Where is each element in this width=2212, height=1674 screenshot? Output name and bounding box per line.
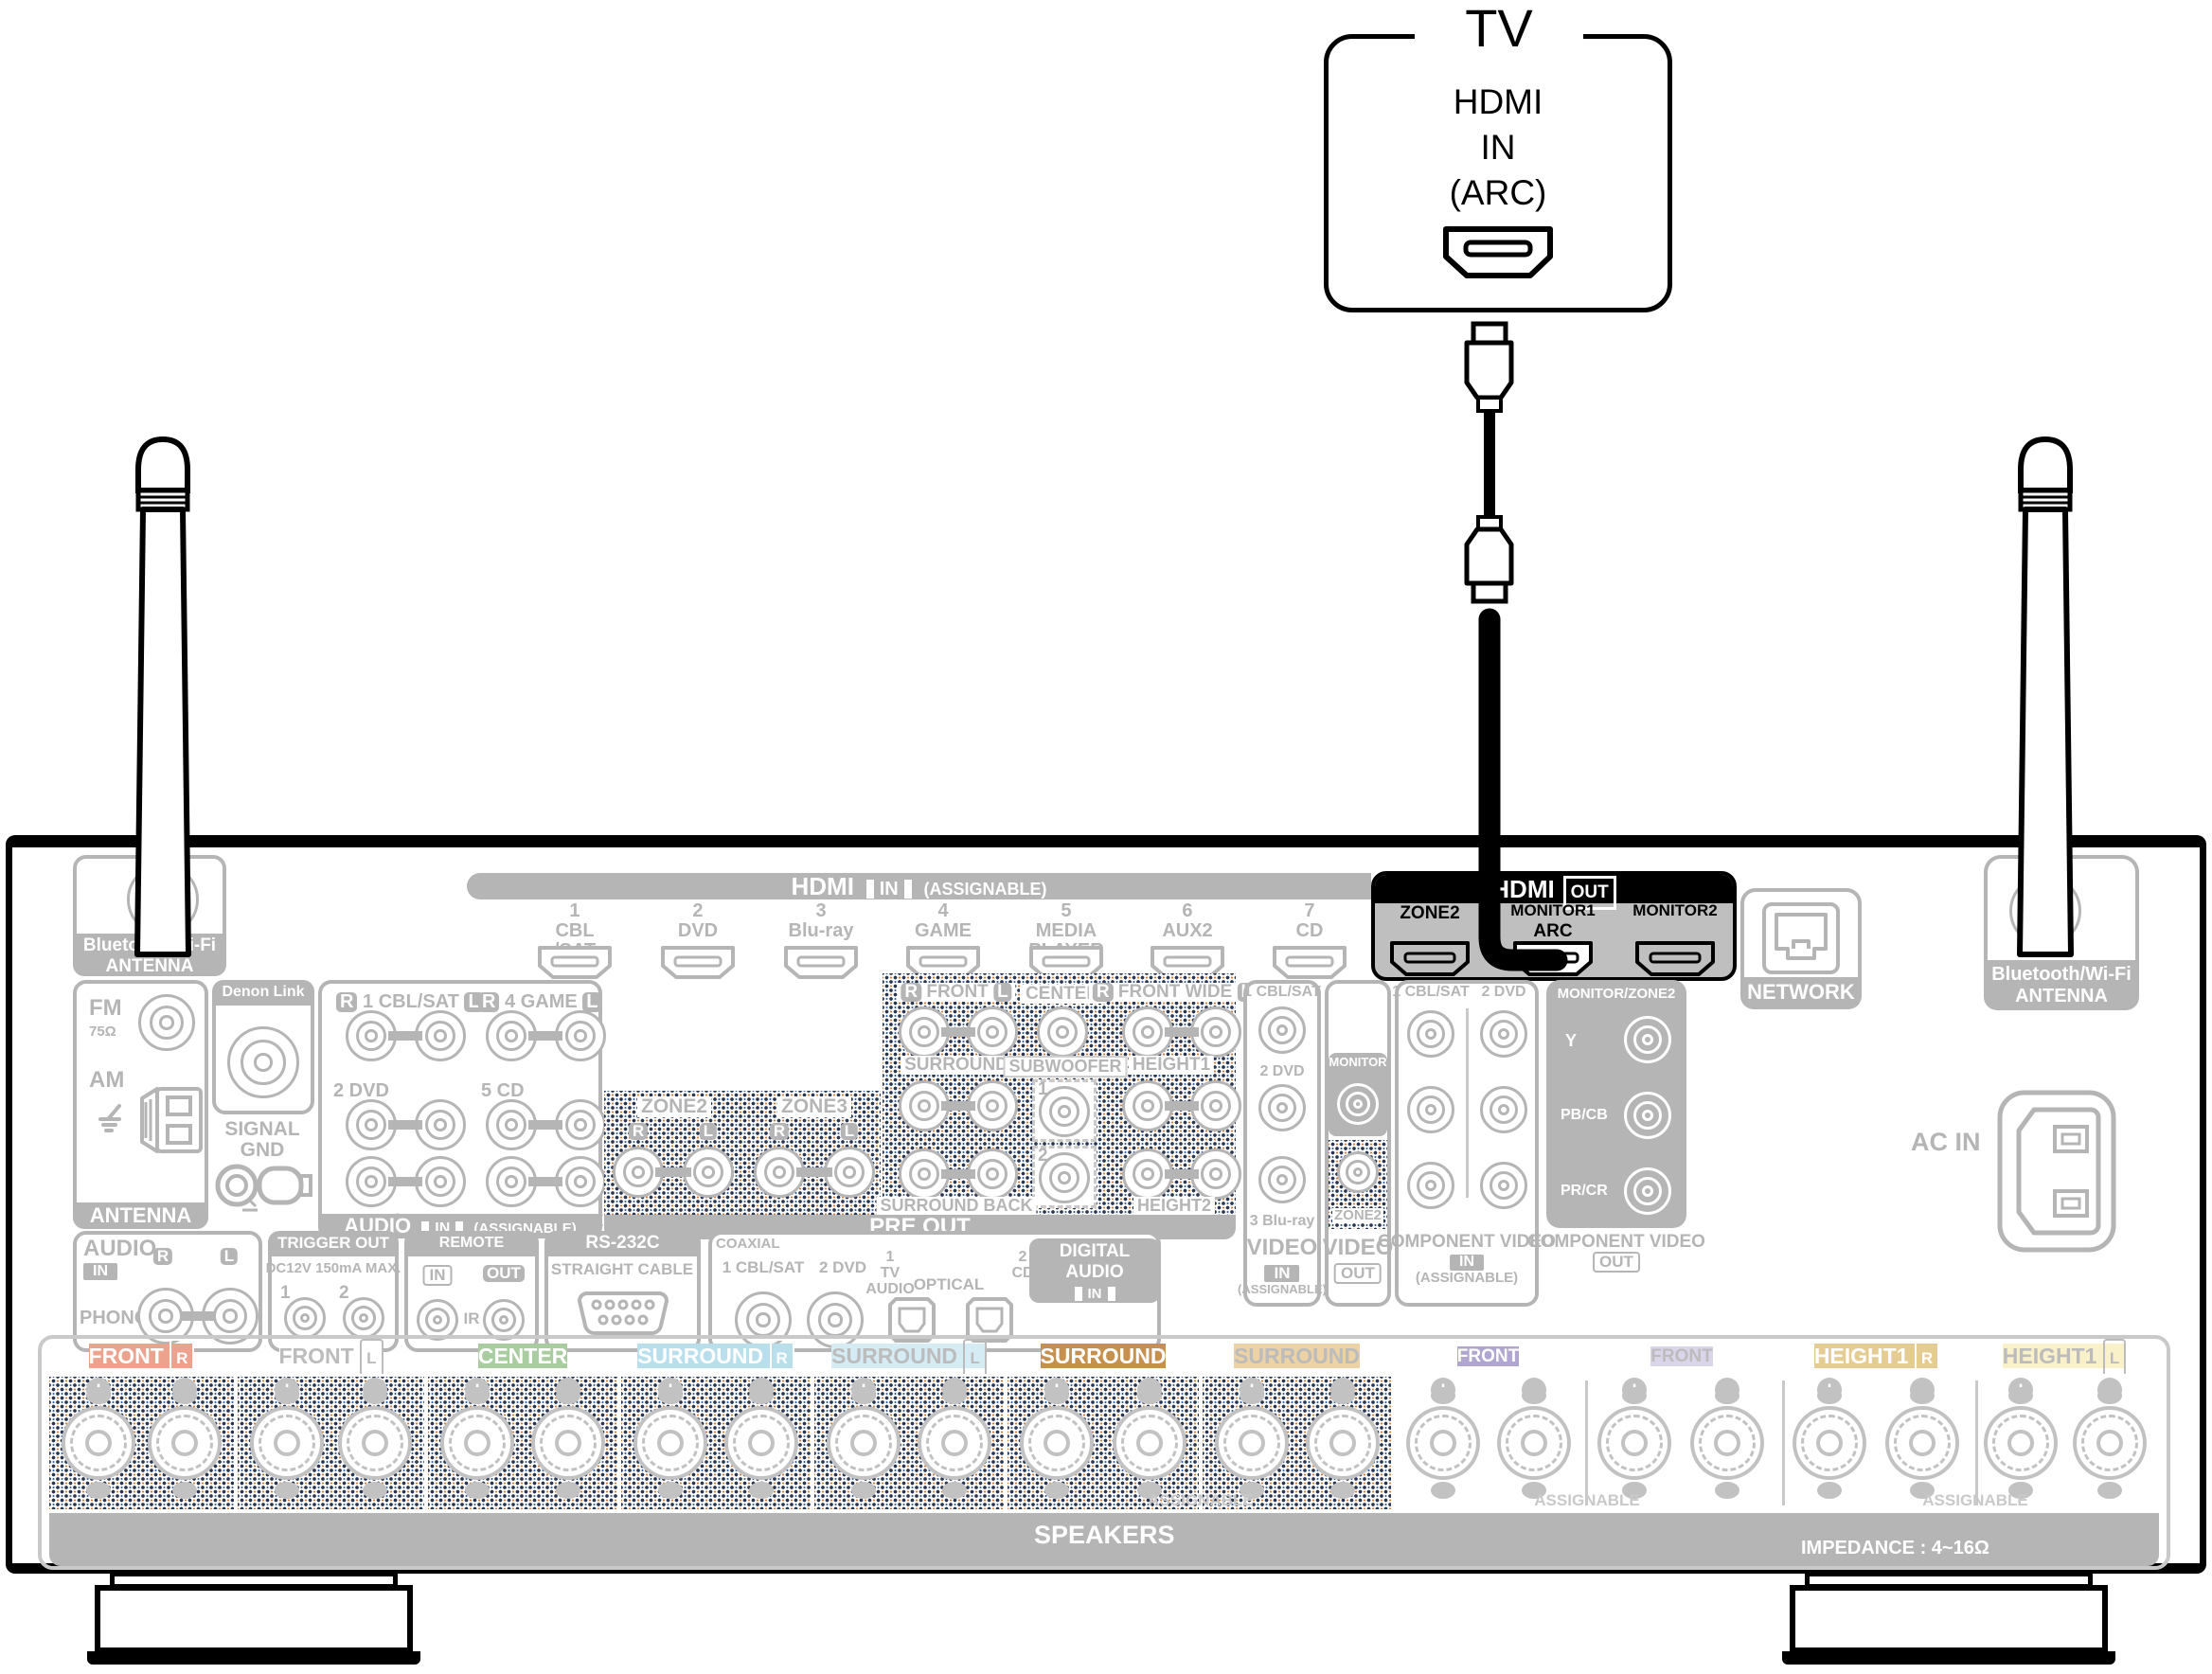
denon-link-title: Denon Link HD [212, 980, 314, 1006]
video-out-monitor-jack [1337, 1083, 1379, 1125]
post-front-r-minus [148, 1406, 222, 1480]
audio-in-6-l-jack [555, 1156, 606, 1207]
component-out-footer: COMPONENT VIDEO OUT [1527, 1233, 1705, 1273]
speaker-header-surround-back-l: SURROUND BACK L [1203, 1339, 1391, 1374]
trigger-out-1-jack [284, 1297, 326, 1339]
post-height1-r-minus [1885, 1406, 1959, 1480]
audio-in-p4-label: R 4 GAME L [478, 992, 601, 1012]
preout-zone3-l: L [841, 1123, 858, 1140]
video-in-1-jack [1258, 1006, 1306, 1054]
hdmi-out-arc-label: ARC [1533, 922, 1572, 941]
component-out-pb-label: PB/CB [1561, 1108, 1608, 1124]
tv-port-label: HDMI IN (ARC) [1324, 80, 1672, 216]
hdmi-out-monitor2-port-icon [1634, 940, 1716, 978]
tuner-antenna-footer: ANTENNA [73, 1202, 208, 1229]
ground-symbol-icon [93, 1100, 131, 1138]
preout-subwoofer2-jack [1039, 1152, 1090, 1203]
hdmi-cable-plug-bottom [1467, 517, 1511, 601]
preout-center-jack [1037, 1006, 1088, 1058]
hdmi-in-port-7-label: 7 CD [1296, 901, 1324, 941]
video-in-footer: VIDEO IN (ASSIGNABLE) [1238, 1236, 1327, 1296]
tv-title-plate: TV [1415, 0, 1583, 59]
hdmi-in-port-6-label: 6 AUX2 [1162, 901, 1212, 941]
digital-tv-label: 1 TV AUDIO [865, 1250, 915, 1297]
video-in-3-jack [1258, 1156, 1306, 1203]
preout-subwoofer1-jack [1039, 1086, 1090, 1137]
post-height1-l-minus [2073, 1406, 2147, 1480]
hdmi-cable-plug-top [1467, 324, 1511, 517]
hdmi-in-port-2-icon [660, 945, 736, 981]
spk-h8: FRONT WIDE/HEIGHT2 L [1603, 1346, 1760, 1374]
fm-ohm-label: 75Ω [89, 1024, 116, 1040]
impedance-label: IMPEDANCE : 4~16Ω [1801, 1538, 1989, 1559]
digital-coaxial-label: COAXIAL [716, 1237, 780, 1252]
assignable-note-1: ASSIGNABLE [1148, 1492, 1253, 1509]
ethernet-port-icon [1761, 901, 1841, 975]
trigger-out-title: TRIGGER OUT [268, 1231, 399, 1256]
component-in-2-pr-jack [1480, 1162, 1527, 1209]
speakers-footer: SPEAKERS IMPEDANCE : 4~16Ω [49, 1513, 2159, 1566]
hdmi-in-header: HDMI IN (ASSIGNABLE) [467, 873, 1371, 899]
hdmi-out-monitor2-label: MONITOR2 [1632, 902, 1717, 919]
am-label: AM [89, 1068, 124, 1092]
preout-height1-label: HEIGHT1 [1129, 1056, 1214, 1075]
bt-antenna-left-mount [127, 864, 199, 935]
rs232-connector-icon [578, 1288, 669, 1339]
preout-zone3-r: R [770, 1123, 789, 1140]
bt-antenna-left-label: Bluetooth/Wi-Fi ANTENNA [73, 934, 226, 976]
hdmi-out-monitor1-port-icon [1512, 940, 1594, 978]
ac-inlet-icon [1996, 1089, 2117, 1254]
preout-subwoofer-label: SUBWOOFER [1004, 1056, 1128, 1077]
fm-jack [138, 994, 195, 1051]
post-center-plus [440, 1406, 514, 1480]
digital-optical-label: OPTICAL [914, 1276, 985, 1293]
digital-audio-badge: DIGITAL AUDIO IN (ASSIGNABLE) [1029, 1238, 1160, 1303]
spk-h1: FRONT L [279, 1344, 384, 1368]
preout-zone2-r: R [629, 1123, 648, 1140]
post-surround-l-plus [827, 1406, 901, 1480]
component-out-title: MONITOR/ZONE2 [1558, 987, 1676, 1002]
trigger-out-2-jack [343, 1297, 384, 1339]
remote-in-badge: IN [423, 1265, 453, 1286]
hdmi-in-port-3-label: 3 Blu-ray [789, 901, 854, 941]
speaker-header-frontwide-height2-r: FRONT WIDE/HEIGHT2 R [1395, 1339, 1581, 1374]
component-in-1-pb-jack [1407, 1086, 1454, 1133]
hdmi-in-port-4-label: 4 GAME [915, 901, 972, 941]
post-height1-l-plus [1984, 1406, 2058, 1480]
denon-link-jack [227, 1026, 299, 1098]
post-center-minus [531, 1406, 605, 1480]
post-front-l-plus [250, 1406, 324, 1480]
post-surround-r-minus [724, 1406, 798, 1480]
remote-out-badge: OUT [483, 1265, 525, 1282]
trigger-out-sub: DC12V 150mA MAX. [266, 1261, 401, 1276]
ac-in-label: AC IN [1911, 1129, 1981, 1155]
video-out-zone2-jack [1337, 1151, 1379, 1193]
preout-zone2-label: ZONE2 [637, 1096, 711, 1117]
component-out-y-jack [1624, 1016, 1671, 1063]
receiver-foot-right [1790, 1572, 2108, 1670]
trigger-out-2: 2 [339, 1284, 349, 1303]
speaker-header-surround-l: SURROUND L [814, 1339, 1004, 1374]
signal-gnd-label: SIGNAL GND [224, 1119, 299, 1161]
post-frontwide-l-plus [1597, 1406, 1671, 1480]
tv-in-label: IN [1324, 125, 1672, 170]
post-surround-back-l-plus [1215, 1406, 1289, 1480]
hdmi-out-zone2-port-icon [1389, 940, 1471, 978]
tv-title: TV [1465, 0, 1533, 58]
tv-hdmi-label: HDMI [1324, 80, 1672, 125]
video-in-p1-label: 1 CBL/SAT [1243, 985, 1320, 1001]
component-out-y-label: Y [1565, 1032, 1577, 1050]
component-in-p2-label: 2 DVD [1481, 985, 1525, 1001]
hdmi-in-port-7-icon [1272, 945, 1347, 981]
spk-h4: SURROUND L [831, 1344, 987, 1368]
component-out-pb-jack [1624, 1092, 1671, 1139]
spk-h5: SURROUND BACK R [1041, 1344, 1167, 1374]
audio-in-1-l-jack [415, 1010, 466, 1061]
preout-zone3-label: ZONE3 [777, 1096, 851, 1117]
hdmi-out-title: HDMI [1491, 875, 1554, 903]
post-surround-back-r-plus [1020, 1406, 1094, 1480]
audio-in-p5-label: 5 CD [481, 1081, 525, 1101]
assignable-note-3: ASSIGNABLE [1922, 1492, 2027, 1509]
component-in-2-y-jack [1480, 1010, 1527, 1058]
hdmi-out-monitor1-label: MONITOR1 [1510, 902, 1595, 919]
trigger-out-1: 1 [280, 1284, 291, 1303]
remote-control-title: REMOTE CONTROL [404, 1231, 539, 1256]
hdmi-in-port-2-label: 2 DVD [678, 901, 718, 941]
preout-surround-label: SURROUND [901, 1056, 1012, 1075]
post-front-r-plus [62, 1406, 135, 1480]
post-frontwide-l-minus [1690, 1406, 1764, 1480]
post-height1-r-plus [1793, 1406, 1866, 1480]
remote-ir-label: IR [464, 1310, 480, 1327]
speaker-header-height1-r: HEIGHT1 R [1782, 1339, 1971, 1374]
preout-zone2-l: L [700, 1123, 717, 1140]
gnd-post-icon [214, 1163, 320, 1212]
post-surround-back-l-minus [1306, 1406, 1380, 1480]
spk-h2: CENTER [478, 1344, 568, 1368]
digital-p1-label: 1 CBL/SAT [722, 1259, 805, 1276]
fm-label: FM [89, 996, 122, 1020]
speaker-header-center: CENTER [428, 1339, 617, 1374]
hdmi-out-zone2-label: ZONE2 [1400, 904, 1459, 923]
speaker-header-surround-r: SURROUND R [621, 1339, 811, 1374]
video-in-p3-label: 3 Blu-ray [1250, 1214, 1314, 1230]
audio-in-p1-label: R 1 CBL/SAT L [336, 992, 484, 1012]
hdmi-in-assignable: (ASSIGNABLE) [924, 880, 1047, 899]
rs232-sub: STRAIGHT CABLE [551, 1261, 693, 1278]
preout-height2-label: HEIGHT2 [1133, 1197, 1215, 1215]
phono-audio-label: AUDIO [83, 1237, 156, 1260]
tv-hdmi-port-icon [1442, 225, 1554, 280]
post-front-l-minus [338, 1406, 412, 1480]
component-in-2-pb-jack [1480, 1086, 1527, 1133]
bt-antenna-right-label: Bluetooth/Wi-Fi ANTENNA [1984, 960, 2139, 1010]
phono-in-badge: IN [83, 1263, 117, 1280]
spk-h10: HEIGHT1 L [2003, 1344, 2126, 1368]
audio-in-5-l-jack [555, 1099, 606, 1150]
spk-h7: FRONT WIDE/HEIGHT2 R [1409, 1346, 1567, 1374]
video-out-zone2-label: ZONE2 [1332, 1208, 1383, 1223]
speaker-header-frontwide-height2-l: FRONT WIDE/HEIGHT2 L [1585, 1339, 1778, 1374]
video-in-2-jack [1258, 1084, 1306, 1131]
hdmi-in-badge: IN [866, 880, 912, 899]
hdmi-in-port-1-icon [537, 945, 613, 981]
audio-in-4-l-jack [555, 1010, 606, 1061]
phono-r-badge: R [153, 1248, 172, 1265]
network-label: NETWORK [1740, 977, 1862, 1009]
assignable-note-2: ASSIGNABLE [1534, 1492, 1639, 1509]
speakers-label: SPEAKERS [1034, 1521, 1175, 1550]
post-surround-back-r-minus [1113, 1406, 1186, 1480]
digital-p2-label: 2 DVD [819, 1259, 866, 1276]
spk-h6: SURROUND BACK L [1234, 1344, 1360, 1374]
audio-in-3-l-jack [415, 1156, 466, 1207]
post-surround-l-minus [918, 1406, 991, 1480]
am-terminal-icon [138, 1085, 205, 1155]
component-out-pr-jack [1624, 1167, 1671, 1215]
audio-in-p2-label: 2 DVD [333, 1081, 389, 1101]
component-in-p1-label: 1 CBL/SAT [1392, 985, 1469, 1001]
spk-h0: FRONT R [89, 1344, 195, 1368]
audio-in-2-l-jack [415, 1099, 466, 1150]
post-surround-r-plus [633, 1406, 707, 1480]
component-out-pr-label: PR/CR [1561, 1184, 1608, 1200]
post-frontwide-r-minus [1497, 1406, 1571, 1480]
bt-antenna-right-mount [2009, 875, 2081, 947]
spk-h3: SURROUND R [637, 1344, 794, 1368]
post-frontwide-r-plus [1406, 1406, 1480, 1480]
video-in-p2-label: 2 DVD [1259, 1064, 1304, 1080]
phono-l-badge: L [221, 1248, 238, 1265]
hdmi-in-title: HDMI [792, 872, 854, 900]
tv-arc-label: (ARC) [1324, 170, 1672, 216]
preout-front-label: R FRONT L [897, 983, 1015, 1002]
receiver-foot-left [95, 1572, 413, 1670]
connection-diagram: TV HDMI IN (ARC) Bluetooth/Wi-Fi ANTENNA… [0, 0, 2212, 1674]
rs232-title: RS-232C [544, 1231, 701, 1256]
speaker-header-front-l: FRONT L [238, 1339, 424, 1374]
component-in-1-pr-jack [1407, 1162, 1454, 1209]
component-in-1-y-jack [1407, 1010, 1454, 1058]
hdmi-in-port-3-icon [783, 945, 859, 981]
spk-h9: HEIGHT1 R [1814, 1344, 1939, 1368]
preout-surroundback-label: SURROUND BACK [877, 1197, 1037, 1215]
speaker-header-surround-back-r: SURROUND BACK R [1008, 1339, 1199, 1374]
preout-frontwide-label: R FRONT WIDE L [1089, 983, 1259, 1002]
speaker-header-height1-l: HEIGHT1 L [1975, 1339, 2153, 1374]
speaker-header-front-r: FRONT R [49, 1339, 234, 1374]
